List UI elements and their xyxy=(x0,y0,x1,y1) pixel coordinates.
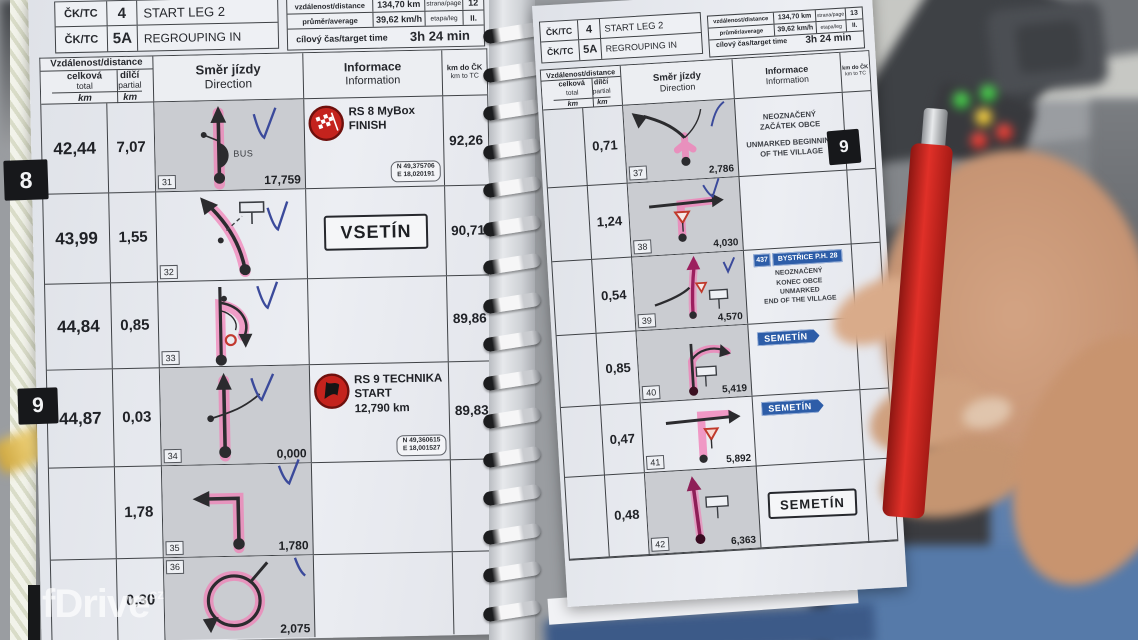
spiral-coil-icon xyxy=(482,214,541,237)
spiral-coil-icon xyxy=(482,99,541,122)
tc-label: ČK/TC xyxy=(541,40,580,62)
stage-title: RS 9 TECHNIKA xyxy=(354,371,442,387)
spiral-coil-icon xyxy=(482,561,541,584)
partial-unit: km xyxy=(118,91,142,104)
spiral-coil-icon xyxy=(482,291,541,314)
total-distance xyxy=(548,186,592,261)
spiral-coil-icon xyxy=(482,330,541,353)
finish-flag-icon xyxy=(307,104,345,142)
gps-coordinates: N 49,360615 E 18,001527 xyxy=(397,434,447,456)
tulip-diagram-cell: 33 xyxy=(158,279,310,367)
watermark-bar xyxy=(28,585,40,640)
partial-distance: 1,24 xyxy=(588,184,632,259)
total-column-sub: total xyxy=(76,82,92,92)
tc-label: ČK/TC xyxy=(540,20,579,41)
direction-sub: Direction xyxy=(205,77,253,92)
info-column-header: Informace Information xyxy=(303,50,443,98)
partial-distance: 0,85 xyxy=(597,331,641,404)
tc-label: ČK/TC xyxy=(56,26,109,52)
total-column-sub: total xyxy=(566,89,579,97)
tulip-distance: 17,759 xyxy=(264,172,301,187)
spiral-coil-icon xyxy=(482,176,541,199)
tc-title: REGROUPING IN xyxy=(138,23,278,51)
partial-distance: 0,54 xyxy=(592,258,636,333)
total-distance xyxy=(561,406,605,477)
tulip-diagram-cell: 41 5,892 xyxy=(641,397,757,473)
box-number: 35 xyxy=(165,541,183,555)
box-number: 32 xyxy=(160,265,178,279)
tulip-distance: 5,419 xyxy=(722,383,748,395)
tulip-curve-left-icon xyxy=(156,189,307,281)
tulip-diagram-cell: 37 2,786 xyxy=(623,99,739,183)
section-tab-9: 9 xyxy=(827,129,862,166)
road-number: 437 xyxy=(753,253,771,267)
tulip-distance: 2,075 xyxy=(280,621,310,636)
tc-number: 5A xyxy=(108,26,139,52)
section-tab-8: 8 xyxy=(3,159,48,201)
average-label: průměr/average xyxy=(287,13,373,29)
partial-column-sub: partial xyxy=(593,87,611,96)
total-distance xyxy=(552,260,596,335)
total-distance: 44,84 xyxy=(45,283,113,369)
total-column-label: celková xyxy=(558,79,585,89)
roadbook-table-left: Vzdálenost/distance celková total km díl… xyxy=(39,48,499,640)
leg-value: II. xyxy=(846,19,863,31)
kmtc-sub: km to TC xyxy=(451,72,479,81)
km-to-tc xyxy=(847,169,879,244)
stage-distance: 12,790 km xyxy=(355,400,443,416)
distance-value: 134,70 km xyxy=(373,0,425,12)
spiral-coil-icon xyxy=(482,137,541,160)
kmtc-column-header: km do ČK km to TC xyxy=(442,49,487,95)
partial-distance: 1,78 xyxy=(115,466,164,558)
info-sub: Information xyxy=(345,74,400,88)
village-note-cz: ZAČÁTEK OBCE xyxy=(760,119,821,133)
stage-title: RS 8 MyBox xyxy=(348,104,415,120)
direction-sign: SEMETÍN xyxy=(761,398,824,416)
total-distance: 43,99 xyxy=(43,193,111,283)
total-distance xyxy=(543,108,587,187)
distance-column-group: Vzdálenost/distance celková total km díl… xyxy=(40,56,154,103)
bus-note: BUS xyxy=(233,148,253,158)
tulip-diagram-cell: 36 2,075 xyxy=(164,555,316,640)
tulip-distance: 6,363 xyxy=(731,535,757,547)
partial-distance: 0,03 xyxy=(113,368,162,466)
photo-scene: ČK/TC 4 START LEG 2 ČK/TC 5A REGROUPING … xyxy=(0,0,1138,640)
stats-header-block: vzdálenost/distance 134,70 km strana/pag… xyxy=(286,0,485,51)
city-sign: VSETÍN xyxy=(324,214,428,251)
total-distance xyxy=(557,334,601,407)
partial-distance: 0,71 xyxy=(583,106,627,185)
box-number: 37 xyxy=(629,165,648,180)
tc-title: START LEG 2 xyxy=(137,0,277,25)
tc-header-block: ČK/TC 4 START LEG 2 ČK/TC 5A REGROUPING … xyxy=(539,12,703,64)
tulip-diagram-cell: 32 xyxy=(156,189,308,281)
tulip-distance: 4,030 xyxy=(713,237,739,249)
tulip-loop-right-icon xyxy=(158,279,309,367)
info-column-header: Informace Information xyxy=(733,53,843,98)
stage-subtitle: FINISH xyxy=(349,118,416,134)
watermark-tld: cz xyxy=(149,586,164,602)
spiral-binding xyxy=(483,26,541,618)
kmtc-column-header: km do ČK km to TC xyxy=(840,51,870,92)
box-number: 34 xyxy=(164,449,182,463)
gps-east: E 18,020191 xyxy=(397,171,435,180)
tulip-distance: 2,786 xyxy=(709,163,735,175)
road-number-sign: 437 BYSTŘICE P.H. 28 xyxy=(753,249,843,268)
tulip-diagram-cell: 34 0,000 xyxy=(160,365,312,465)
tulip-diagram-cell: BUS 31 17,759 xyxy=(154,99,306,191)
watermark-logo: fDrivecz xyxy=(42,584,164,624)
box-number: 40 xyxy=(642,385,661,400)
total-distance: 42,44 xyxy=(41,103,109,193)
partial-distance: 0,47 xyxy=(601,403,645,474)
average-value: 39,62 km/h xyxy=(373,12,425,27)
target-time-value: 3h 24 min xyxy=(396,25,484,46)
leg-value: II. xyxy=(463,10,483,24)
direction-column-header: Směr jízdy Direction xyxy=(621,59,735,105)
info-cell: RS 9 TECHNIKA START 12,790 km N 49,36061… xyxy=(310,362,451,462)
total-distance xyxy=(49,467,117,559)
roadbook-left-page: ČK/TC 4 START LEG 2 ČK/TC 5A REGROUPING … xyxy=(28,0,503,640)
tc-number: 4 xyxy=(578,19,601,39)
tc-label: ČK/TC xyxy=(55,1,107,26)
tc-number: 5A xyxy=(579,39,602,60)
partial-column-sub: partial xyxy=(118,81,142,91)
info-cell xyxy=(312,460,453,554)
tulip-diagram-cell: 42 6,363 xyxy=(645,466,762,553)
green-button xyxy=(951,90,972,111)
tulip-distance: 5,892 xyxy=(726,453,752,465)
spiral-coil-icon xyxy=(482,60,541,83)
spiral-coil-icon xyxy=(482,368,541,391)
partial-distance: 1,55 xyxy=(109,192,158,282)
total-distance xyxy=(565,475,610,558)
road-name: BYSTŘICE P.H. 28 xyxy=(773,249,843,267)
kmtc-sub: km to TC xyxy=(845,71,866,78)
roadbook-row: 1,78 35 1,780 xyxy=(49,459,497,560)
box-number: 41 xyxy=(646,455,665,470)
door-speaker xyxy=(986,0,1109,96)
page-label: strana/page xyxy=(425,0,463,11)
spiral-coil-icon xyxy=(482,253,541,276)
tc-header-block: ČK/TC 4 START LEG 2 ČK/TC 5A REGROUPING … xyxy=(54,0,279,53)
stats-header-block: vzdálenost/distance 134,70 km strana/pag… xyxy=(707,6,865,57)
yellow-button xyxy=(973,107,994,128)
gps-east: E 18,001527 xyxy=(403,445,441,454)
partial-distance: 0,48 xyxy=(605,473,650,556)
direction-sign: SEMETÍN xyxy=(757,329,820,347)
tulip-diagram-cell: 38 4,030 xyxy=(628,177,744,257)
village-note-en: END OF THE VILLAGE xyxy=(764,293,837,306)
red-button xyxy=(994,122,1015,143)
info-cell: VSETÍN xyxy=(306,186,447,278)
spiral-coil-icon xyxy=(482,445,541,468)
tulip-distance: 4,570 xyxy=(717,311,743,323)
watermark-name: fDrive xyxy=(42,582,149,626)
spiral-coil-icon xyxy=(482,522,541,545)
info-cell: RS 8 MyBox FINISH N 49,375706 E 18,02019… xyxy=(304,96,445,188)
city-sign: SEMETÍN xyxy=(768,488,858,519)
start-flag-icon xyxy=(313,372,351,410)
leg-label: etapa/leg xyxy=(425,11,463,26)
roadbook-row: 42,44 7,07 BUS 31 17,759 xyxy=(41,95,489,194)
partial-unit: km xyxy=(593,96,611,106)
partial-column-label: dílčí xyxy=(594,78,609,87)
roadbook-row: 43,99 1,55 32 xyxy=(43,185,491,284)
roadbook-row: 44,84 0,85 33 xyxy=(45,275,493,370)
roadbook-row: 44,87 0,03 34 0,000 xyxy=(47,361,495,468)
target-time-label: cílový čas/target time xyxy=(288,27,396,48)
tulip-diagram-cell: 40 5,419 xyxy=(636,325,752,403)
box-number: 33 xyxy=(161,351,179,365)
partial-distance: 7,07 xyxy=(107,102,156,192)
info-sub: Information xyxy=(766,74,810,86)
page-number: 12 xyxy=(463,0,483,10)
speaker-grille-icon xyxy=(1016,20,1083,74)
info-label: Informace xyxy=(344,60,402,75)
section-tab-9: 9 xyxy=(17,387,58,424)
box-number: 31 xyxy=(158,175,176,189)
spiral-coil-icon xyxy=(482,484,541,507)
info-cell xyxy=(314,552,455,637)
box-number: 39 xyxy=(637,313,656,328)
tulip-distance: 0,000 xyxy=(276,446,306,461)
red-button xyxy=(968,130,989,151)
direction-sub: Direction xyxy=(660,81,696,93)
leg-label: etapa/leg xyxy=(816,20,847,33)
spiral-coil-icon xyxy=(482,407,541,430)
partial-distance: 0,85 xyxy=(111,282,160,368)
tulip-distance: 1,780 xyxy=(278,538,308,553)
distance-column-group: Vzdálenost/distance celková total km díl… xyxy=(541,66,623,110)
info-cell: SEMETÍN xyxy=(753,390,865,465)
direction-column-header: Směr jízdy Direction xyxy=(153,53,304,101)
page-number: 13 xyxy=(846,7,863,19)
tc-number: 4 xyxy=(107,1,137,26)
box-number: 38 xyxy=(633,239,652,254)
tulip-diagram-cell: 35 1,780 xyxy=(162,463,314,557)
distance-label: vzdálenost/distance xyxy=(287,0,373,14)
tulip-diagram-cell: 39 4,570 xyxy=(632,251,748,331)
info-cell: SEMETÍN xyxy=(757,460,870,547)
info-cell xyxy=(740,171,852,250)
box-number: 42 xyxy=(651,537,670,552)
box-number: 36 xyxy=(166,560,184,574)
gps-coordinates: N 49,375706 E 18,020191 xyxy=(391,160,441,182)
info-cell xyxy=(308,276,449,364)
page-label: strana/page xyxy=(816,8,847,21)
